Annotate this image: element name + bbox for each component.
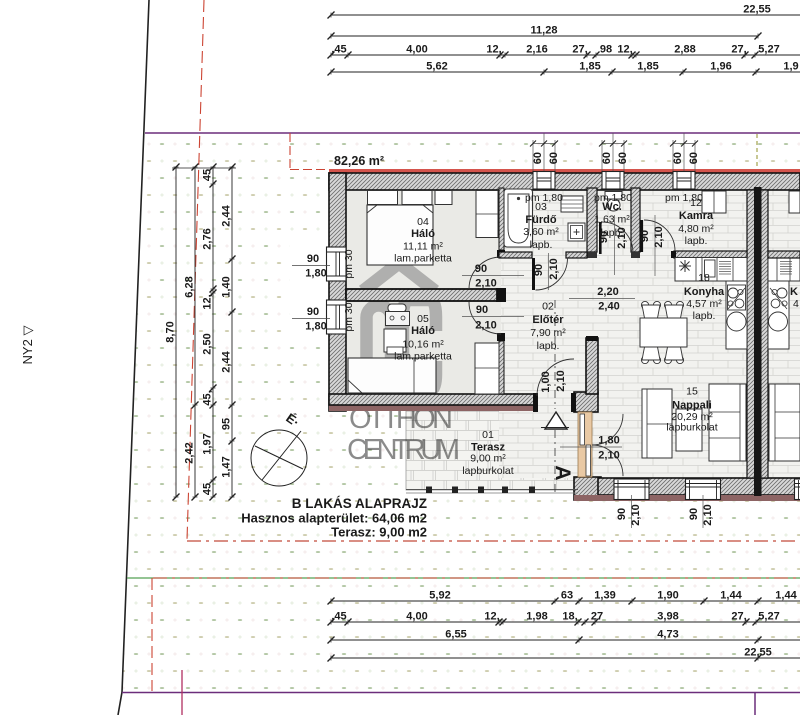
svg-text:1,80: 1,80: [305, 321, 326, 333]
svg-text:lapb.: lapb.: [530, 239, 553, 251]
svg-text:Kamra: Kamra: [679, 210, 714, 222]
svg-text:lam.parketta: lam.parketta: [394, 253, 452, 265]
svg-text:1,85: 1,85: [637, 61, 658, 73]
svg-text:2,10: 2,10: [475, 320, 496, 332]
svg-text:90: 90: [307, 253, 319, 265]
svg-text:lapb.: lapb.: [685, 235, 708, 247]
svg-text:60: 60: [672, 152, 684, 164]
svg-text:pm 1,80: pm 1,80: [525, 192, 563, 204]
svg-text:2,44: 2,44: [221, 204, 233, 226]
svg-text:2,16: 2,16: [526, 44, 547, 56]
svg-text:2,20: 2,20: [597, 286, 618, 298]
svg-text:60: 60: [548, 152, 560, 164]
svg-text:4,80 m²: 4,80 m²: [678, 223, 714, 235]
svg-text:2,10: 2,10: [475, 278, 496, 290]
svg-text:Konyha: Konyha: [684, 286, 725, 298]
svg-text:04: 04: [417, 216, 429, 228]
svg-text:lam.parketta: lam.parketta: [394, 351, 452, 363]
svg-text:05: 05: [417, 313, 429, 325]
svg-text:2,88: 2,88: [674, 44, 695, 56]
svg-text:2,40: 2,40: [598, 301, 619, 313]
svg-text:15: 15: [686, 386, 698, 398]
svg-text:Háló: Háló: [411, 325, 435, 337]
svg-text:2,44: 2,44: [221, 350, 233, 372]
svg-text:12,: 12,: [617, 44, 632, 56]
svg-text:2,10: 2,10: [555, 370, 567, 391]
svg-text:1,98: 1,98: [526, 611, 547, 623]
svg-text:,45: ,45: [331, 611, 346, 623]
svg-text:5,62: 5,62: [426, 61, 447, 73]
svg-text:01: 01: [482, 429, 494, 441]
svg-text:45: 45: [202, 483, 214, 495]
svg-text:1,96: 1,96: [710, 61, 731, 73]
svg-text:pm 1,80: pm 1,80: [594, 192, 632, 204]
svg-text:B LAKÁS ALAPRAJZ: B LAKÁS ALAPRAJZ: [292, 496, 427, 511]
svg-text:12,: 12,: [486, 44, 501, 56]
svg-text:95: 95: [221, 418, 233, 430]
svg-text:60: 60: [532, 152, 544, 164]
svg-text:45,: 45,: [202, 390, 214, 405]
svg-text:12,: 12,: [484, 611, 499, 623]
svg-text:1,00: 1,00: [540, 371, 552, 392]
svg-text:1,44: 1,44: [720, 590, 742, 602]
svg-text:Nappali: Nappali: [672, 400, 712, 412]
svg-text:3,98: 3,98: [657, 611, 678, 623]
svg-text:1,39: 1,39: [594, 590, 615, 602]
svg-text:,45: ,45: [331, 44, 346, 56]
svg-text:Fürdő: Fürdő: [525, 214, 556, 226]
svg-text:27,: 27,: [731, 611, 746, 623]
svg-text:Terasz: 9,00 m2: Terasz: 9,00 m2: [331, 525, 427, 540]
svg-text:82,26 m²: 82,26 m²: [334, 154, 384, 168]
svg-text:CENTRUM: CENTRUM: [347, 434, 463, 466]
svg-text:Hasznos alapterület: 64,06 m2: Hasznos alapterület: 64,06 m2: [241, 511, 427, 526]
svg-text:1,44: 1,44: [775, 590, 797, 602]
svg-text:2,10: 2,10: [630, 504, 642, 525]
svg-text:NY2 ▽: NY2 ▽: [20, 326, 35, 365]
svg-text:1,85: 1,85: [579, 61, 600, 73]
svg-text:90: 90: [475, 263, 487, 275]
svg-text:5,92: 5,92: [429, 590, 450, 602]
svg-text:1,63 m²: 1,63 m²: [594, 214, 630, 226]
svg-text:2,10: 2,10: [653, 226, 665, 247]
svg-text:1,47: 1,47: [221, 456, 233, 477]
svg-text:4: 4: [793, 298, 799, 310]
svg-text:Háló: Háló: [411, 228, 435, 240]
svg-text:18: 18: [698, 272, 710, 284]
svg-text:pm 1,80: pm 1,80: [665, 192, 703, 204]
svg-text:90: 90: [639, 230, 651, 242]
svg-text:4,73: 4,73: [657, 629, 678, 641]
svg-text:lapb.: lapb.: [693, 310, 716, 322]
svg-text:90: 90: [307, 306, 319, 318]
svg-text:4,00: 4,00: [406, 44, 427, 56]
svg-text:2,76: 2,76: [202, 228, 214, 249]
svg-text:9,00 m²: 9,00 m²: [470, 453, 506, 465]
svg-text:2,10: 2,10: [598, 450, 619, 462]
svg-text:lapb.: lapb.: [537, 340, 560, 352]
svg-text:pm 30: pm 30: [343, 302, 355, 331]
svg-text:45: 45: [202, 169, 214, 181]
svg-text:22,55: 22,55: [743, 4, 771, 16]
svg-text:18,: 18,: [562, 611, 577, 623]
svg-text:A: A: [551, 465, 574, 480]
svg-text:8,70: 8,70: [165, 321, 177, 342]
svg-text:lapb.: lapb.: [601, 227, 624, 239]
svg-text:10,16 m²: 10,16 m²: [402, 339, 444, 351]
svg-text:2,50: 2,50: [202, 333, 214, 354]
svg-text:27,: 27,: [572, 44, 587, 56]
svg-text:12,: 12,: [202, 294, 214, 309]
svg-text:90: 90: [476, 304, 488, 316]
svg-text:60: 60: [617, 152, 629, 164]
svg-text:lapburkolat: lapburkolat: [462, 465, 513, 477]
svg-text:11,28: 11,28: [531, 25, 558, 37]
svg-text:60: 60: [601, 152, 613, 164]
svg-text:22,55: 22,55: [744, 647, 772, 659]
svg-text:pm 30: pm 30: [343, 249, 355, 278]
svg-text:1,9: 1,9: [783, 61, 798, 73]
svg-text:2,10: 2,10: [702, 504, 714, 525]
svg-text:27: 27: [591, 611, 603, 623]
svg-text:27,: 27,: [731, 44, 746, 56]
svg-text:90: 90: [616, 508, 628, 520]
svg-text:6,28: 6,28: [184, 276, 196, 297]
svg-text:6,55: 6,55: [445, 629, 466, 641]
svg-text:1,80: 1,80: [305, 268, 326, 280]
svg-text:7,90 m²: 7,90 m²: [530, 327, 566, 339]
svg-text:2,42: 2,42: [184, 442, 196, 463]
svg-text:1,97: 1,97: [202, 433, 214, 454]
svg-text:Előtér: Előtér: [532, 314, 564, 326]
svg-text:90: 90: [688, 508, 700, 520]
svg-text:1,40: 1,40: [221, 276, 233, 297]
svg-text:5,27: 5,27: [758, 44, 779, 56]
svg-text:lapburkolat: lapburkolat: [666, 422, 717, 434]
svg-text:11,11 m²: 11,11 m²: [403, 241, 443, 253]
svg-text:3,60 m²: 3,60 m²: [523, 226, 559, 238]
svg-text:98: 98: [600, 44, 612, 56]
svg-text:4,00: 4,00: [406, 611, 427, 623]
svg-text:1,90: 1,90: [657, 590, 678, 602]
svg-text:63: 63: [561, 590, 573, 602]
svg-text:4,57 m²: 4,57 m²: [686, 298, 722, 310]
svg-text:02: 02: [542, 301, 554, 313]
svg-text:1,80: 1,80: [598, 435, 619, 447]
svg-text:K: K: [790, 286, 798, 298]
svg-text:90: 90: [533, 264, 545, 276]
svg-text:5,27: 5,27: [758, 611, 779, 623]
svg-text:2,10: 2,10: [548, 258, 560, 279]
svg-text:60: 60: [688, 152, 700, 164]
